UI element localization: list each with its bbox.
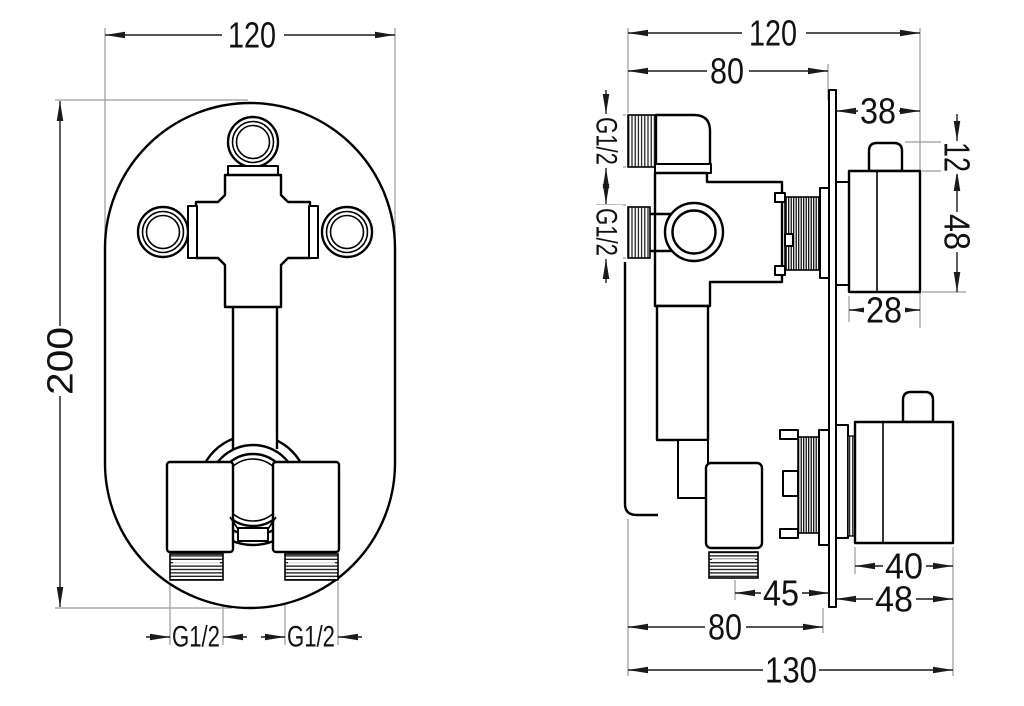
side-stem-height-label: 12: [937, 142, 978, 172]
lower-knob-body: [855, 422, 953, 543]
bottom-outlet-block: [706, 463, 762, 548]
top-port-outer-ring: [228, 117, 278, 167]
mounting-bracket: [625, 262, 658, 515]
upper-knob-stem: [869, 143, 902, 171]
side-total-depth-label: 130: [765, 650, 817, 691]
lower-wall-thread: [798, 437, 820, 533]
front-height-dimension-label: 200: [40, 327, 81, 395]
right-outlet-block: [273, 462, 339, 552]
left-port-outer-ring: [138, 207, 188, 257]
thread-highlight: [712, 559, 755, 562]
bottom-outlet-thread: [709, 552, 758, 578]
thread-highlight: [288, 561, 335, 564]
top-inlet-thread: [628, 115, 656, 167]
side-body-depth-label: 80: [710, 51, 744, 92]
side-top-inlet-label: G1/2: [590, 117, 623, 165]
side-knob1-height-label: 48: [937, 214, 978, 250]
front-view: 120 200 G1/2 G1/2: [40, 15, 396, 654]
top-inlet-flange: [655, 164, 711, 173]
front-right-outlet-label: G1/2: [287, 621, 335, 654]
thread-notch: [783, 471, 798, 496]
side-view: 120 80 38 G1/2 G1/2 12 48 28 40 48 45 80…: [590, 13, 978, 691]
side-knob2-depth-label: 48: [875, 579, 913, 620]
boss-tab: [775, 266, 785, 275]
upper-front-ring: [836, 182, 849, 285]
thread-highlight: [173, 561, 220, 564]
boss-tab: [780, 430, 798, 439]
side-total-width-label: 120: [749, 13, 797, 54]
side-plate-front-label: 38: [860, 91, 896, 132]
front-left-outlet-label: G1/2: [172, 621, 220, 654]
boss-tab: [780, 529, 798, 538]
lower-front-ring: [836, 425, 848, 538]
top-port-flange: [228, 166, 278, 175]
right-outlet-thread: [285, 554, 338, 580]
wall-plate: [829, 90, 836, 607]
side-knob1-width-label: 28: [866, 290, 902, 331]
upper-knob-body: [849, 171, 920, 292]
right-port-outer-ring: [322, 207, 372, 257]
lower-knob-stem: [903, 392, 933, 422]
side-side-inlet-label: G1/2: [590, 208, 623, 256]
side-rear-depth-label: 80: [708, 607, 742, 648]
lower-rear-flange: [819, 430, 829, 545]
left-port-collar: [188, 206, 197, 258]
thread-notch: [785, 234, 793, 246]
left-outlet-block: [167, 462, 233, 552]
down-column: [657, 306, 708, 440]
outlet-detail-tab: [238, 528, 268, 541]
side-inlet-thread: [628, 207, 650, 258]
left-outlet-thread: [170, 554, 223, 580]
down-tube-fill: [234, 309, 276, 449]
top-inlet-elbow: [656, 115, 710, 165]
right-port-collar: [309, 206, 318, 258]
boss-tab: [775, 193, 785, 202]
technical-drawing-page: 120 200 G1/2 G1/2: [0, 0, 1024, 706]
side-inlet-port-bore: [673, 211, 716, 254]
shower-valve-technical-drawing: 120 200 G1/2 G1/2: [0, 0, 1024, 706]
front-width-dimension-label: 120: [228, 15, 276, 56]
side-outlet-offset-label: 45: [763, 573, 799, 614]
outlet-block-arm: [678, 440, 708, 498]
upper-rear-flange: [820, 188, 829, 278]
